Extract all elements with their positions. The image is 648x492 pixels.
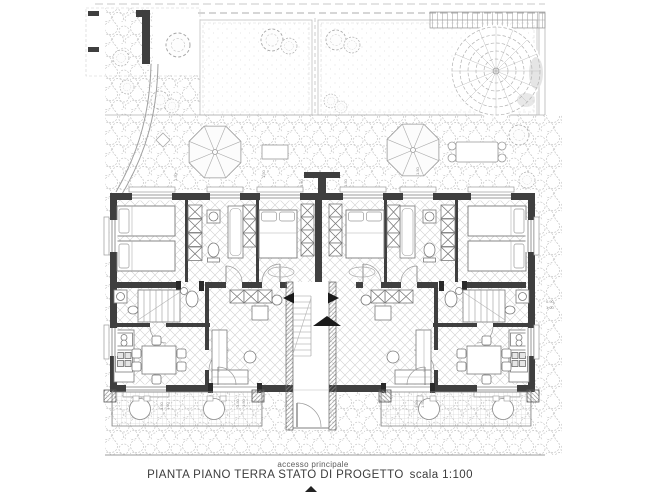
stairwell bbox=[283, 282, 341, 430]
dimension-label: 3.50 bbox=[235, 398, 240, 407]
dimension-label: 1.50 bbox=[299, 178, 304, 187]
access-caption-text: accesso principale bbox=[277, 460, 348, 469]
dimension-label: 3.50 bbox=[414, 399, 419, 408]
access-caption: accesso principale bbox=[0, 460, 626, 469]
dimension-label: 1.50 bbox=[165, 401, 170, 410]
dimension-label: 1.50 bbox=[173, 172, 178, 181]
main-access-marker-icon bbox=[305, 486, 317, 492]
dimension-label: 1.50 bbox=[415, 166, 420, 175]
lawn-left bbox=[200, 20, 312, 115]
patio-umbrella-icon bbox=[189, 126, 241, 178]
drawing-title-text: PIANTA PIANO TERRA STATO DI PROGETTO bbox=[147, 469, 404, 481]
dimension-label: 1.00 bbox=[546, 305, 555, 310]
dimension-label: 1.50 bbox=[343, 178, 348, 187]
dimension-label: 1.50 bbox=[261, 169, 266, 178]
dimension-label: 1.50 bbox=[420, 399, 425, 408]
drawing-title: PIANTA PIANO TERRA STATO DI PROGETTOscal… bbox=[0, 469, 620, 481]
floor-plan-page: 3.50 1.50 3.50 1.50 0.90 1.00 1.50 1.50 … bbox=[0, 0, 648, 492]
drawing-scale-label: scala 1:100 bbox=[410, 469, 473, 481]
dimension-label: 3.50 bbox=[159, 401, 164, 410]
patio-umbrella-icon bbox=[387, 124, 439, 176]
dimension-label: 0.90 bbox=[546, 299, 555, 304]
dimension-label: 1.50 bbox=[241, 398, 246, 407]
pergola-strip bbox=[430, 12, 545, 28]
floor-plan-drawing: 3.50 1.50 3.50 1.50 0.90 1.00 1.50 1.50 … bbox=[0, 0, 648, 492]
